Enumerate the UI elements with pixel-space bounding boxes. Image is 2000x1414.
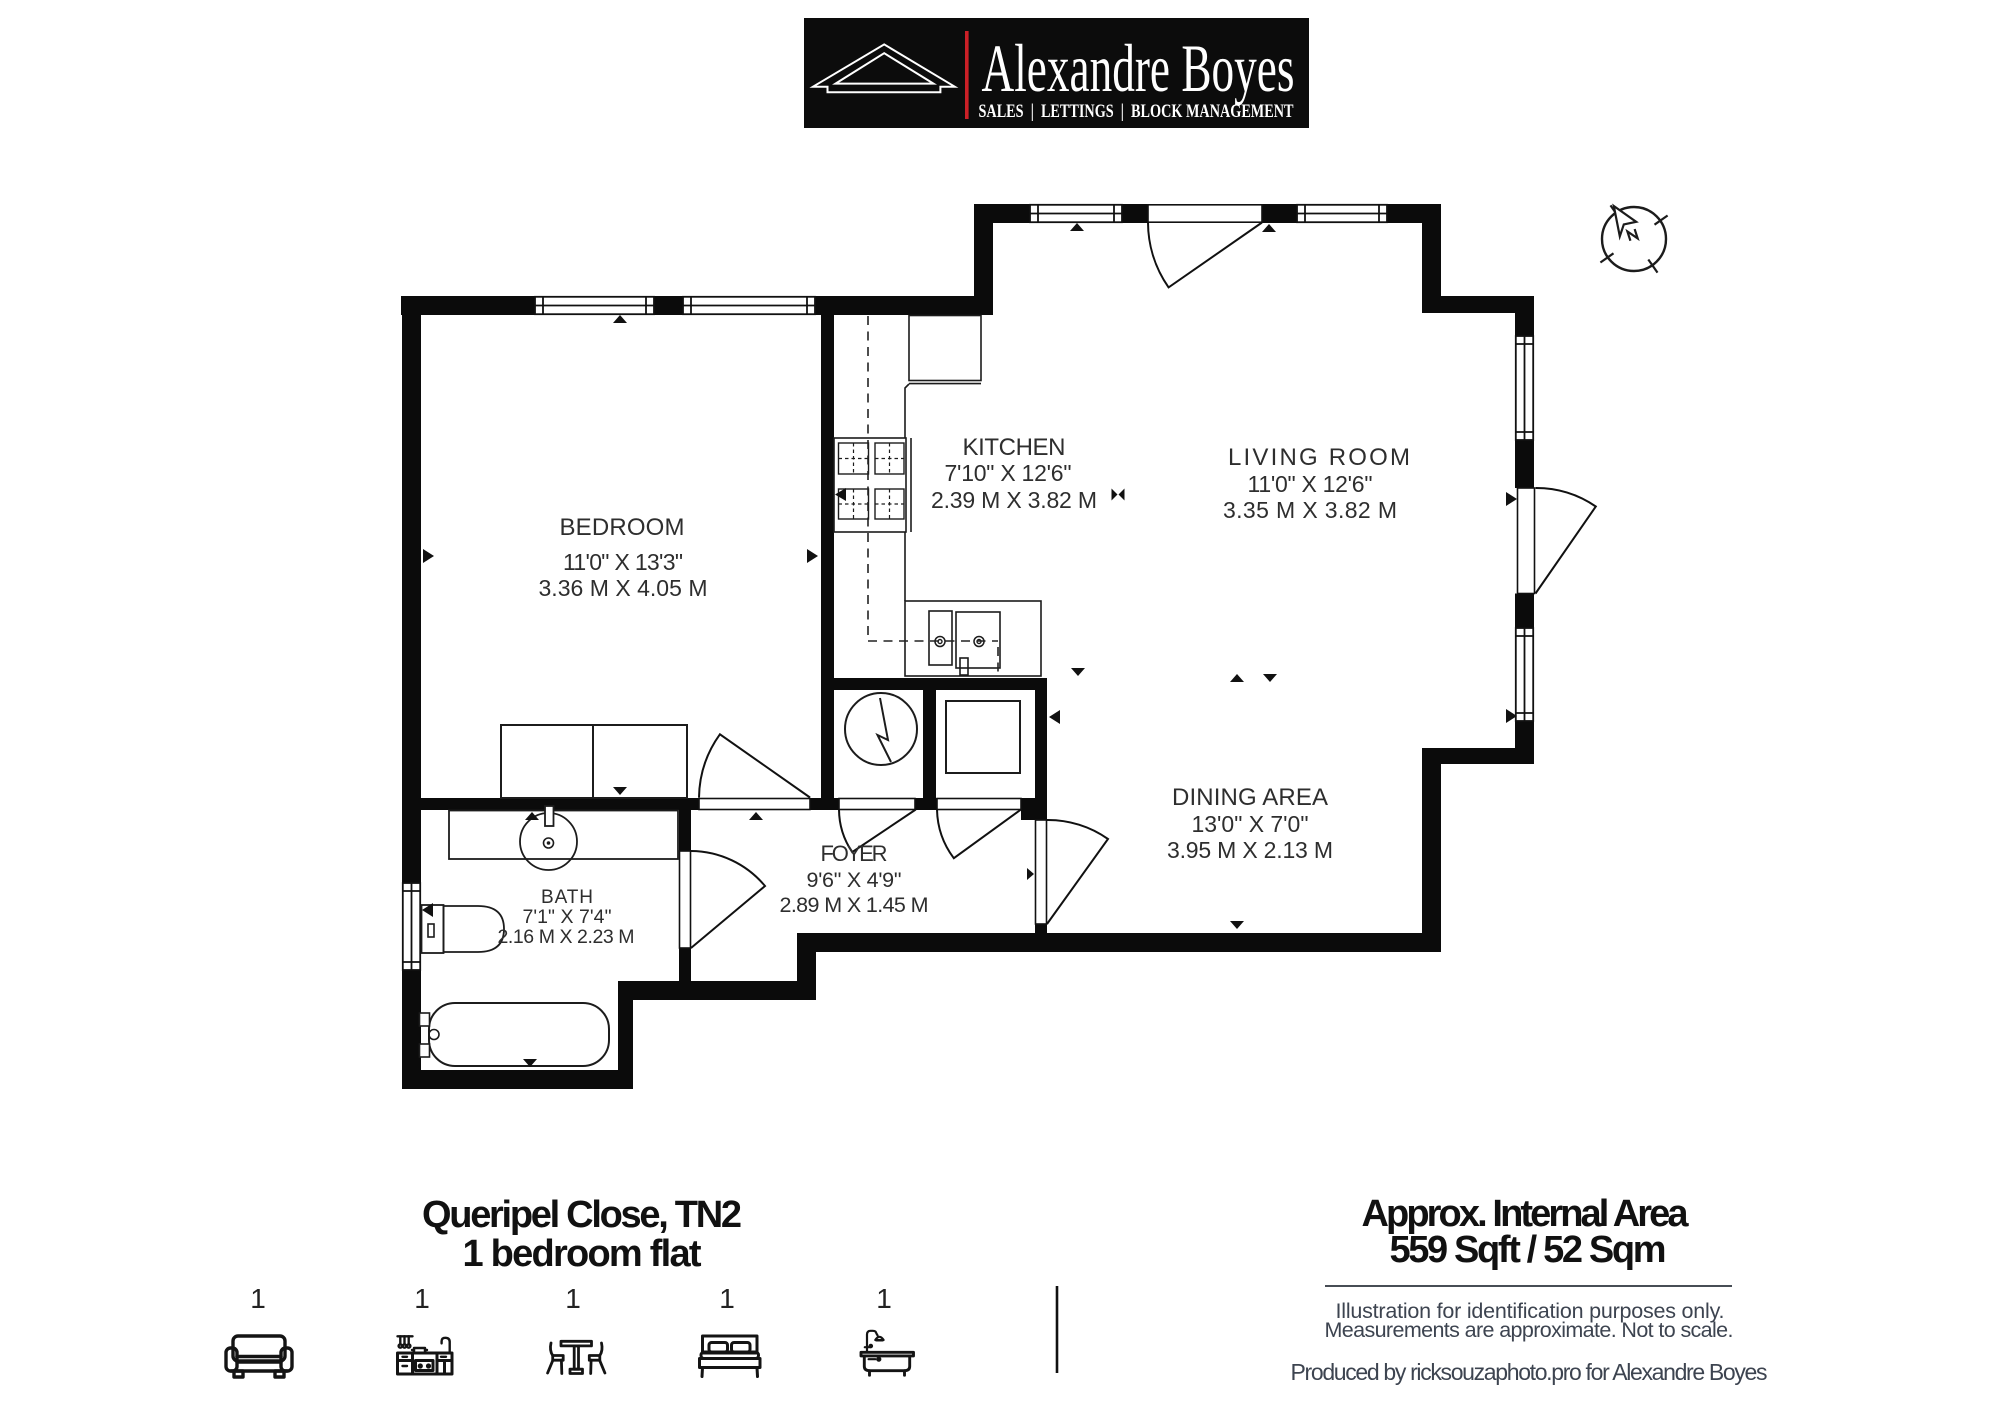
svg-text:FOYER: FOYER [821, 841, 888, 866]
svg-text:KITCHEN: KITCHEN [963, 434, 1066, 461]
svg-text:11'0" X 12'6": 11'0" X 12'6" [1248, 471, 1373, 497]
svg-text:1: 1 [719, 1283, 735, 1314]
svg-text:3.36 M X 4.05 M: 3.36 M X 4.05 M [539, 575, 708, 601]
svg-text:LIVING ROOM: LIVING ROOM [1228, 444, 1410, 471]
svg-text:Measurements are approximate.: Measurements are approximate. Not to sca… [1325, 1318, 1734, 1342]
svg-text:559 Sqft / 52 Sqm: 559 Sqft / 52 Sqm [1390, 1229, 1667, 1271]
svg-text:1: 1 [414, 1283, 430, 1314]
svg-text:Produced by ricksouzaphoto.pro: Produced by ricksouzaphoto.pro for Alexa… [1291, 1359, 1768, 1385]
svg-text:13'0" X 7'0": 13'0" X 7'0" [1192, 811, 1309, 837]
svg-text:DINING AREA: DINING AREA [1172, 784, 1328, 811]
svg-text:1: 1 [876, 1283, 892, 1314]
svg-text:1 bedroom flat: 1 bedroom flat [463, 1233, 702, 1275]
svg-text:Alexandre Boyes: Alexandre Boyes [982, 30, 1295, 106]
svg-text:2.39 M X 3.82 M: 2.39 M X 3.82 M [931, 487, 1097, 513]
svg-text:7'1" X 7'4": 7'1" X 7'4" [523, 906, 612, 928]
svg-text:BATH: BATH [541, 887, 593, 908]
svg-text:3.95 M X 2.13 M: 3.95 M X 2.13 M [1167, 837, 1333, 863]
svg-text:2.16 M X 2.23 M: 2.16 M X 2.23 M [498, 926, 635, 948]
svg-text:SALES | LETTINGS | BLOCK M: SALES | LETTINGS | BLOCK MANAGEMENT [979, 101, 1294, 122]
svg-text:7'10" X 12'6": 7'10" X 12'6" [945, 460, 1072, 486]
svg-text:11'0" X 13'3": 11'0" X 13'3" [563, 549, 683, 575]
svg-text:2.89 M X 1.45 M: 2.89 M X 1.45 M [780, 893, 929, 917]
svg-text:BEDROOM: BEDROOM [560, 514, 685, 541]
svg-text:Queripel Close, TN2: Queripel Close, TN2 [422, 1194, 742, 1236]
svg-text:3.35 M X 3.82 M: 3.35 M X 3.82 M [1223, 497, 1397, 523]
svg-text:1: 1 [565, 1283, 581, 1314]
svg-text:9'6" X 4'9": 9'6" X 4'9" [807, 868, 902, 892]
svg-text:1: 1 [250, 1283, 266, 1314]
